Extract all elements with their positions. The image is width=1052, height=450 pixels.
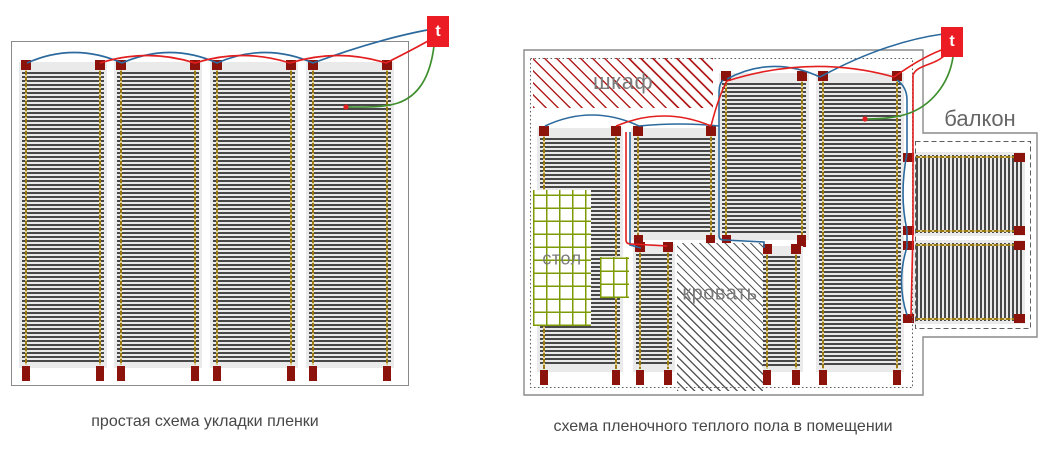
- terminal: [818, 71, 828, 81]
- right-diagram-caption: схема пленочного теплого пола в помещени…: [528, 418, 918, 436]
- terminal: [903, 153, 914, 162]
- balcony-label: балкон: [944, 106, 1015, 132]
- busbar-right: [290, 65, 292, 365]
- terminal: [663, 242, 673, 252]
- film-stripes: [819, 83, 901, 366]
- table-label: стол: [542, 249, 581, 270]
- terminal: [287, 366, 295, 381]
- busbar-left: [725, 76, 727, 237]
- terminal: [1014, 153, 1025, 162]
- busbar-top: [916, 244, 1022, 246]
- terminal: [190, 60, 200, 70]
- terminal: [1014, 226, 1025, 235]
- busbar-left: [120, 65, 122, 365]
- busbar-right: [896, 76, 898, 369]
- busbar-right: [795, 249, 797, 369]
- busbar-left: [312, 65, 314, 365]
- busbar-left: [639, 247, 641, 369]
- thermostat-badge: t: [427, 16, 449, 47]
- film-stripes: [722, 83, 806, 234]
- terminal: [721, 71, 731, 81]
- terminal: [664, 370, 672, 385]
- terminal: [611, 126, 621, 136]
- terminal: [797, 71, 807, 81]
- bed-label: кровать: [682, 283, 757, 306]
- terminal: [892, 71, 902, 81]
- busbar-left: [822, 76, 824, 369]
- terminal: [22, 366, 30, 381]
- busbar-left: [216, 65, 218, 365]
- terminal: [636, 370, 644, 385]
- terminal: [792, 370, 800, 385]
- film-strip-balcony: [913, 152, 1025, 236]
- busbar-bottom: [916, 230, 1022, 232]
- busbar-top: [916, 156, 1022, 158]
- terminal: [191, 366, 199, 381]
- busbar-left: [637, 131, 639, 237]
- terminal: [763, 370, 771, 385]
- terminal: [96, 366, 104, 381]
- film-strip: [631, 128, 718, 240]
- terminal: [286, 60, 296, 70]
- film-stripes: [213, 72, 295, 362]
- thermostat-letter: t: [949, 33, 954, 51]
- terminal: [1014, 314, 1025, 323]
- wardrobe-area: шкаф: [533, 58, 713, 108]
- busbar-right: [801, 76, 803, 237]
- left-diagram-caption: простая схема укладки пленки: [50, 413, 360, 431]
- terminal: [762, 244, 772, 254]
- busbar-right: [667, 247, 669, 369]
- terminal: [117, 366, 125, 381]
- bed-area: кровать: [677, 243, 763, 391]
- film-strip-balcony: [913, 240, 1025, 324]
- wardrobe-label: шкаф: [593, 69, 653, 95]
- film-strip: [816, 73, 904, 372]
- terminal: [1014, 241, 1025, 250]
- thermostat-letter: t: [435, 23, 440, 41]
- terminal: [903, 241, 914, 250]
- film-strip: [210, 62, 298, 368]
- terminal: [382, 60, 392, 70]
- floor-heating-diagram: шкаф стол кровать балкон t t простая схе…: [0, 0, 1052, 450]
- table-area: стол: [533, 190, 591, 326]
- busbar-right: [386, 65, 388, 365]
- terminal: [213, 366, 221, 381]
- busbar-right: [615, 131, 617, 369]
- terminal: [903, 226, 914, 235]
- film-strip: [19, 62, 107, 368]
- film-stripes: [117, 72, 199, 362]
- film-strip: [114, 62, 202, 368]
- terminal: [635, 242, 645, 252]
- terminal: [612, 370, 620, 385]
- busbar-right: [194, 65, 196, 365]
- terminal: [21, 60, 31, 70]
- film-strip: [633, 244, 675, 372]
- film-strip: [760, 246, 803, 372]
- film-stripes: [22, 72, 104, 362]
- busbar-left: [25, 65, 27, 365]
- terminal: [706, 126, 716, 136]
- terminal: [540, 370, 548, 385]
- film-stripes: [916, 243, 1022, 321]
- busbar-right: [99, 65, 101, 365]
- terminal: [633, 126, 643, 136]
- terminal: [95, 60, 105, 70]
- terminal: [383, 366, 391, 381]
- film-stripes: [309, 72, 391, 362]
- busbar-right: [710, 131, 712, 237]
- table-area-extension: [600, 257, 629, 298]
- terminal: [309, 366, 317, 381]
- terminal: [116, 60, 126, 70]
- terminal: [212, 60, 222, 70]
- terminal: [819, 370, 827, 385]
- film-stripes: [634, 138, 715, 234]
- terminal: [893, 370, 901, 385]
- terminal: [539, 126, 549, 136]
- terminal: [903, 314, 914, 323]
- busbar-left: [766, 249, 768, 369]
- busbar-bottom: [916, 318, 1022, 320]
- terminal: [308, 60, 318, 70]
- film-stripes: [916, 155, 1022, 233]
- thermostat-badge: t: [941, 27, 963, 57]
- film-strip: [719, 73, 809, 240]
- film-strip: [306, 62, 394, 368]
- terminal: [791, 244, 801, 254]
